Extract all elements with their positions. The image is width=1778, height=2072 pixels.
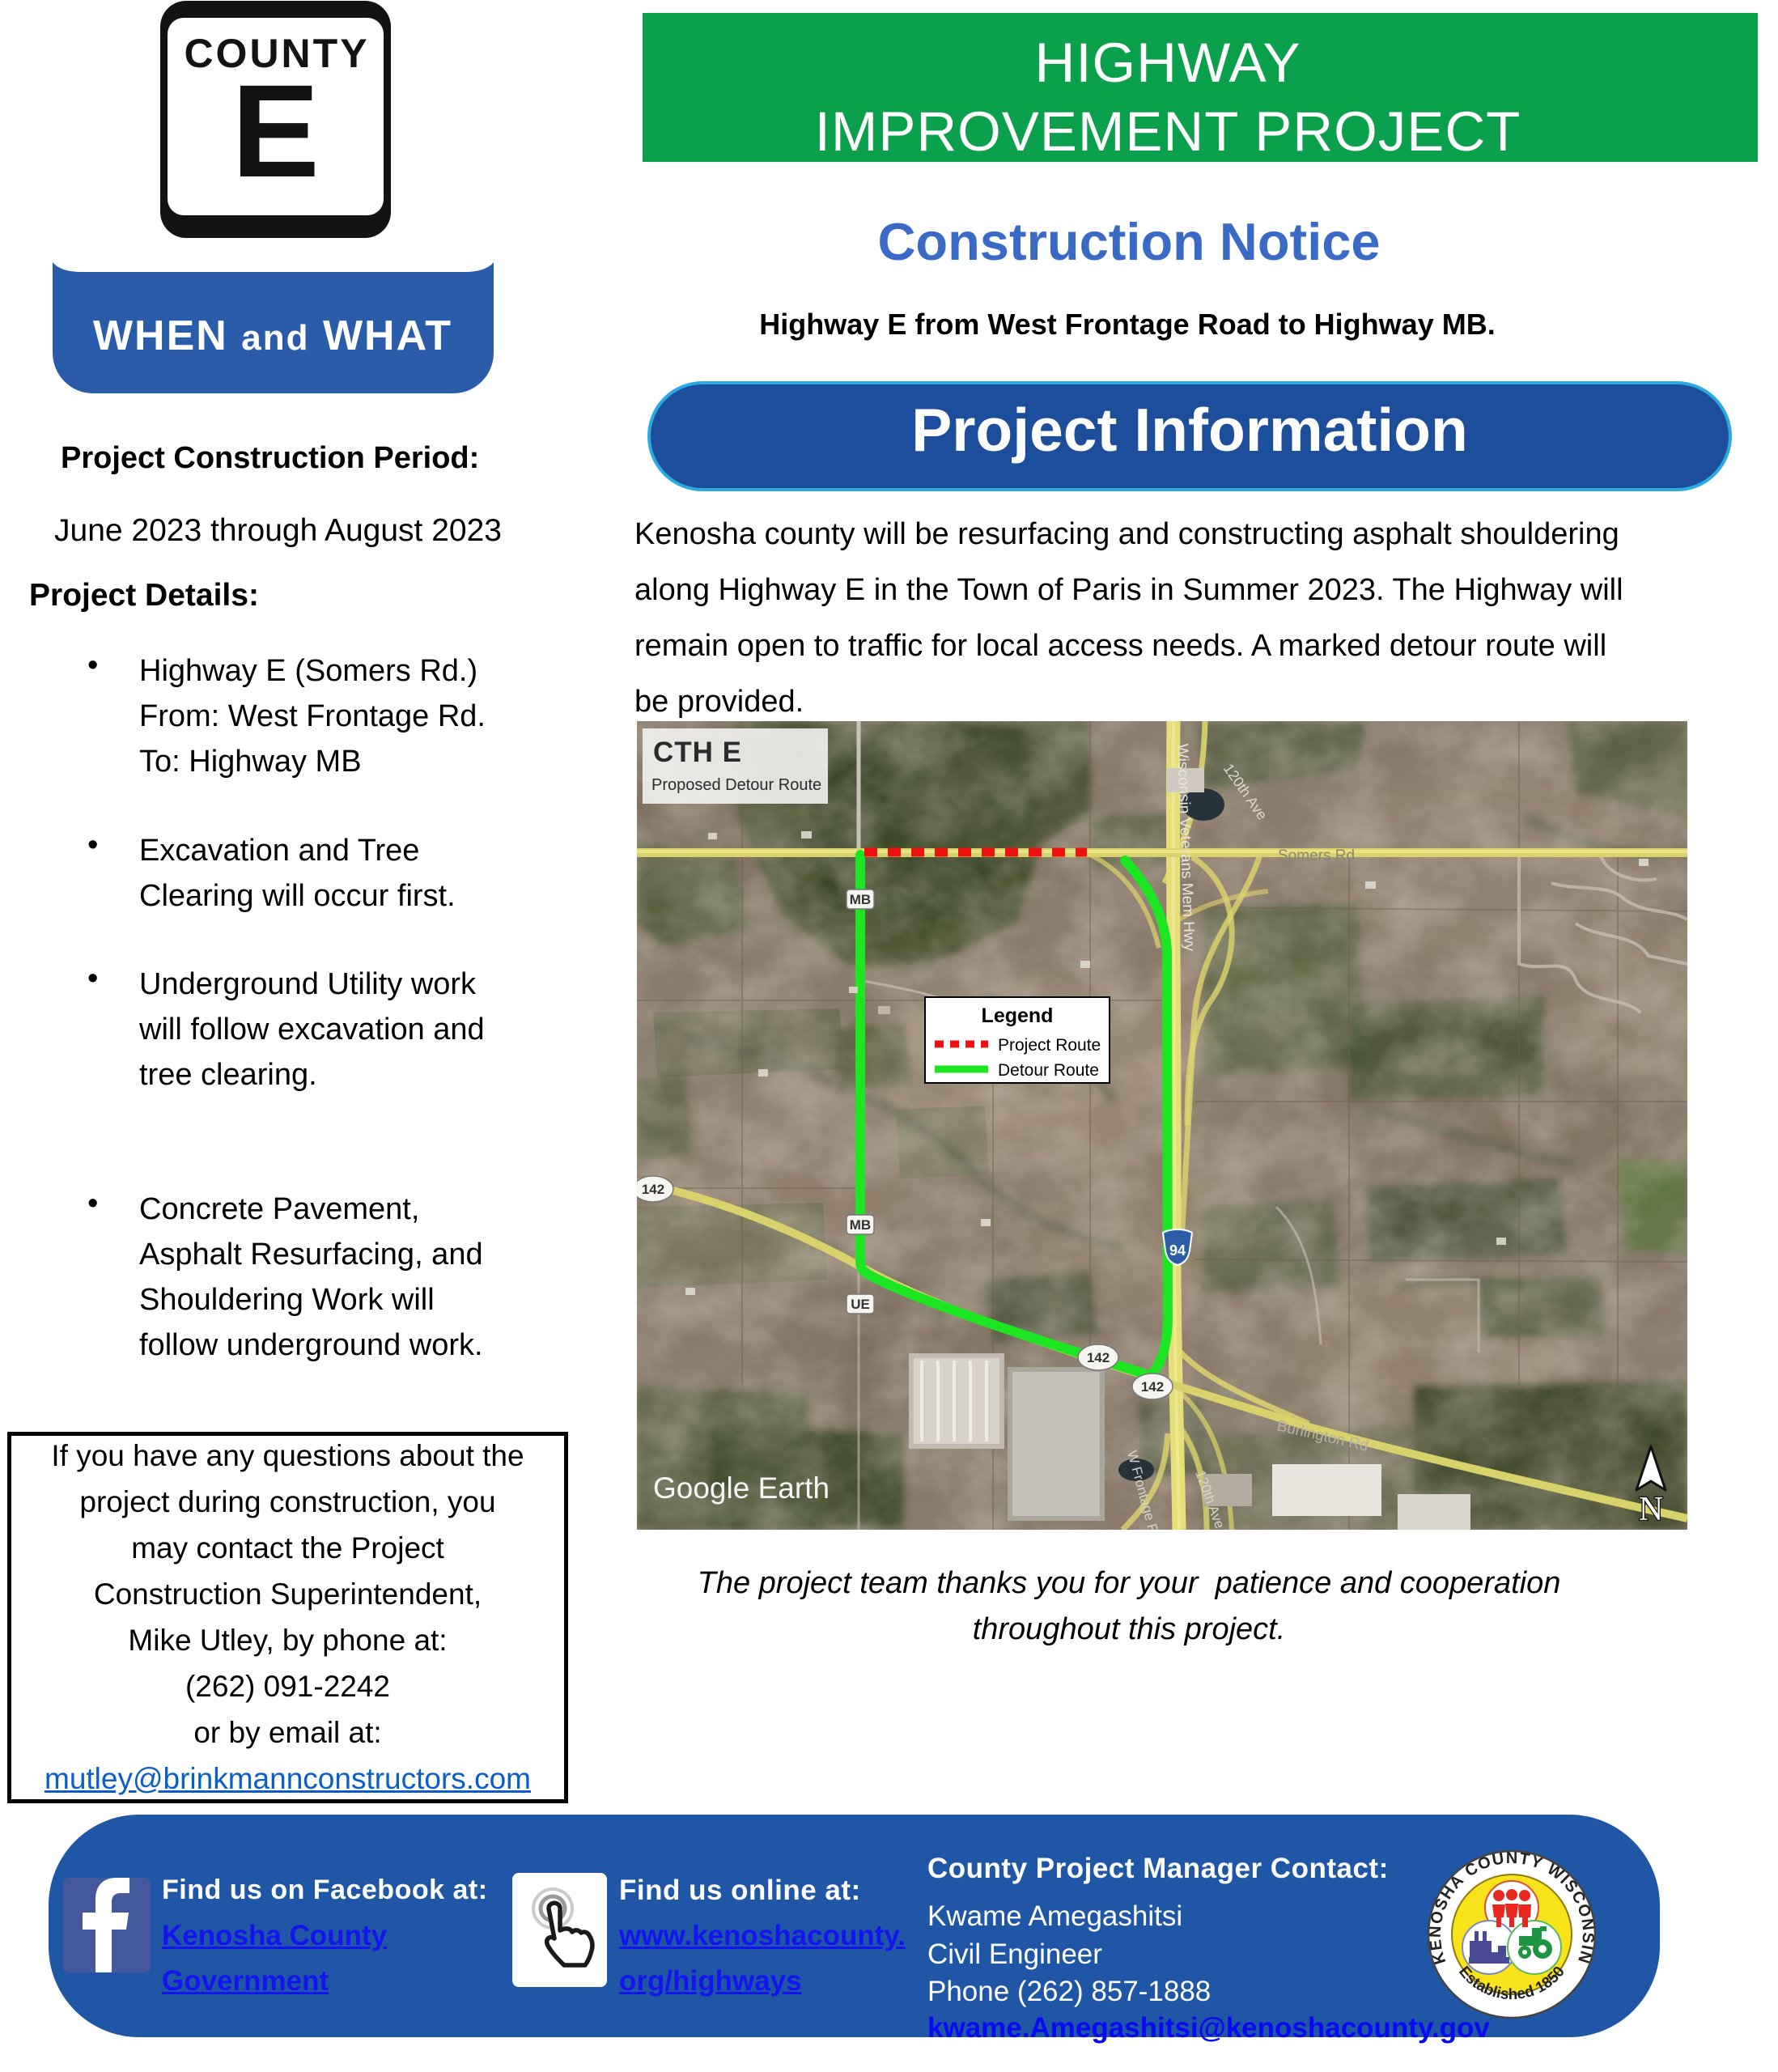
svg-text:CTH E: CTH E bbox=[653, 737, 742, 768]
svg-text:Detour Route: Detour Route bbox=[998, 1061, 1099, 1080]
svg-text:142: 142 bbox=[1141, 1379, 1164, 1395]
svg-text:Legend: Legend bbox=[982, 1004, 1054, 1027]
svg-text:N: N bbox=[1639, 1491, 1663, 1528]
svg-text:UE: UE bbox=[851, 1297, 870, 1312]
svg-text:Google Earth: Google Earth bbox=[653, 1471, 830, 1505]
svg-text:Project Route: Project Route bbox=[998, 1036, 1101, 1055]
svg-text:WHEN and WHAT: WHEN and WHAT bbox=[93, 312, 452, 359]
svg-text:MB: MB bbox=[850, 1217, 871, 1233]
svg-text:142: 142 bbox=[1087, 1350, 1110, 1365]
svg-text:Somers Rd: Somers Rd bbox=[1278, 847, 1355, 864]
svg-text:Proposed Detour Route: Proposed Detour Route bbox=[651, 776, 821, 794]
svg-text:MB: MB bbox=[850, 892, 871, 907]
svg-text:94: 94 bbox=[1169, 1242, 1186, 1259]
svg-text:142: 142 bbox=[642, 1182, 664, 1197]
